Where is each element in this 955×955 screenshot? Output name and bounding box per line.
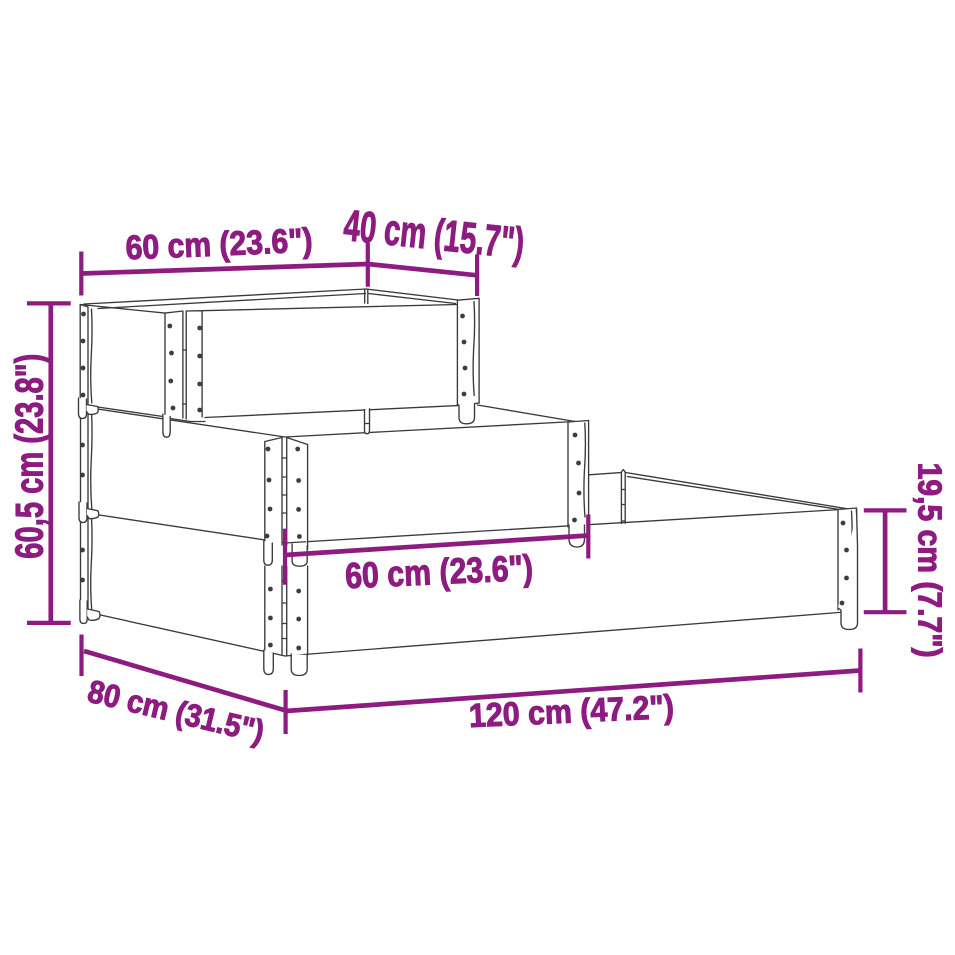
- svg-text:60 cm (23.6"): 60 cm (23.6"): [344, 547, 534, 596]
- svg-text:60,5 cm (23.8"): 60,5 cm (23.8"): [9, 354, 52, 559]
- svg-text:60 cm (23.6"): 60 cm (23.6"): [125, 222, 313, 268]
- svg-text:19,5 cm (7.7"): 19,5 cm (7.7"): [912, 463, 949, 658]
